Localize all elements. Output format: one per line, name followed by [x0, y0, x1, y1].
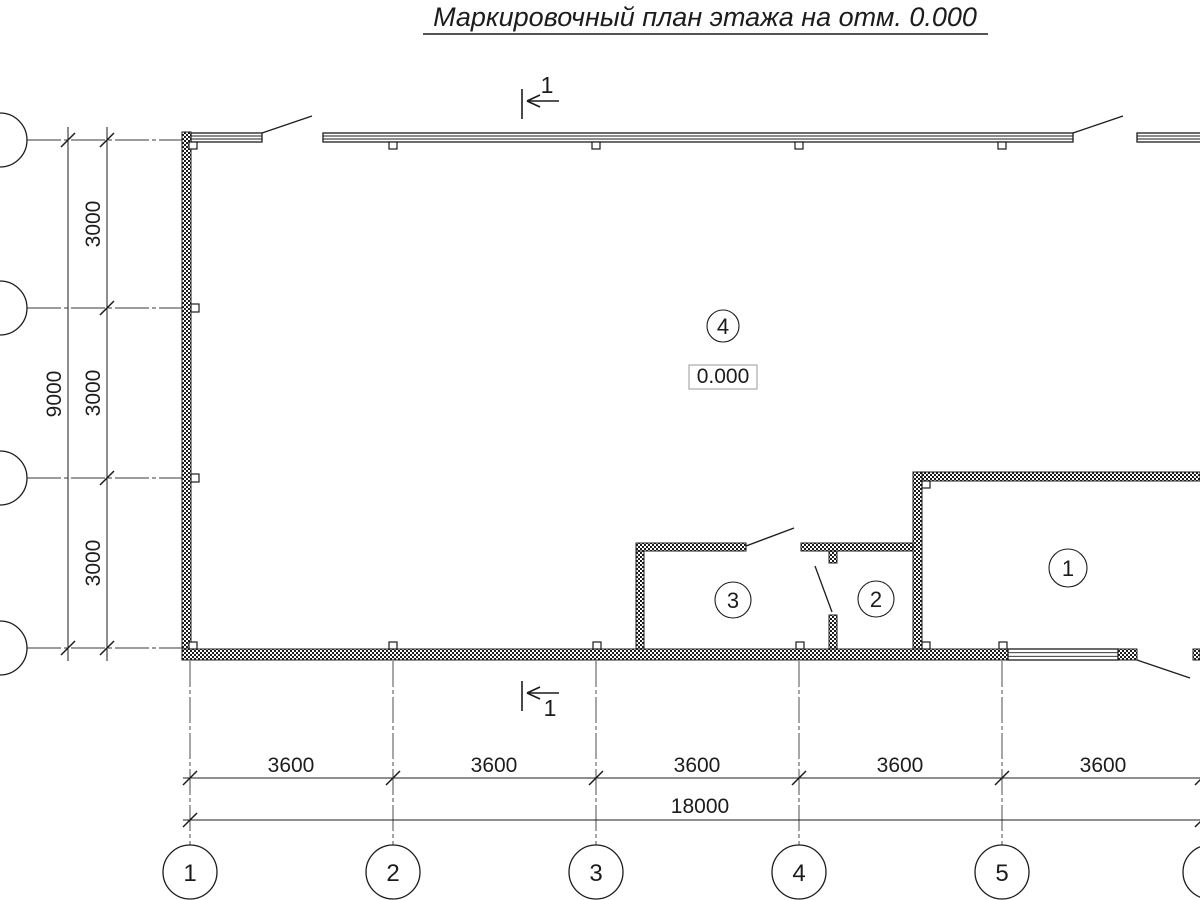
- room-number-4: 4: [717, 314, 729, 339]
- dim-label-18000: 18000: [671, 795, 729, 818]
- axis-bubble-row: [0, 113, 27, 167]
- dims-bottom: 3600 3600 3600 3600 3600 18000: [183, 754, 1200, 827]
- section-label-bottom: 1: [544, 695, 557, 721]
- axis-bubbles-bottom: 1 2 3 4 5 6: [163, 845, 1200, 899]
- section-arrow-barb: [527, 693, 540, 699]
- axis-number-3: 3: [589, 860, 602, 887]
- door-leaf-top-left: [262, 116, 312, 133]
- window-bands: [191, 133, 1200, 660]
- wall-partition-stub-bottom: [829, 615, 837, 649]
- axis-number-2: 2: [386, 860, 399, 887]
- floor-plan-sheet: Маркировочный план этажа на отм. 0.000 3…: [0, 0, 1200, 900]
- room-number-1: 1: [1062, 556, 1074, 581]
- dim-label-3600-1: 3600: [268, 754, 315, 777]
- tab-marker: [191, 304, 199, 312]
- tab-marker: [389, 142, 397, 149]
- tab-marker: [389, 642, 397, 649]
- wall-bottom-exterior: [182, 649, 1008, 660]
- axis-grid-bottom: [190, 661, 1002, 845]
- axis-bubble-row: [0, 451, 27, 505]
- dim-label-3600-2: 3600: [471, 754, 518, 777]
- wall-bottom-pier: [1118, 649, 1137, 660]
- wall-room1-left: [913, 472, 922, 649]
- axis-bubble-row: [0, 621, 27, 675]
- dim-label-3000-2: 3000: [82, 370, 105, 417]
- tab-marker: [593, 642, 601, 649]
- tab-marker: [922, 642, 930, 649]
- window-band-bottom: [1008, 649, 1118, 660]
- dim-label-3600-3: 3600: [674, 754, 721, 777]
- axis-number-4: 4: [792, 860, 805, 887]
- dim-label-3000-1: 3000: [82, 201, 105, 248]
- axis-number-1: 1: [183, 860, 196, 887]
- column-tabs: [189, 142, 1007, 649]
- room-number-3: 3: [727, 588, 739, 613]
- room-number-2: 2: [870, 587, 882, 612]
- elevation-value: 0.000: [697, 365, 750, 388]
- tab-marker: [592, 142, 600, 149]
- wall-bottom-right-stub: [1193, 649, 1200, 660]
- window-band-top-1: [191, 133, 262, 142]
- tab-marker: [189, 142, 197, 149]
- floor-plan-canvas: Маркировочный план этажа на отм. 0.000 3…: [0, 0, 1200, 900]
- dim-label-3000-3: 3000: [82, 540, 105, 587]
- section-arrow-barb: [527, 101, 540, 107]
- tab-marker: [189, 642, 197, 649]
- wall-left-exterior: [182, 132, 191, 660]
- section-label-top: 1: [541, 72, 554, 98]
- wall-partition-stub-top: [829, 551, 837, 563]
- wall-room1-top: [913, 472, 1200, 481]
- window-band-top-2: [323, 133, 1073, 142]
- dim-label-3600-5: 3600: [1080, 754, 1127, 777]
- door-leaf-room2: [815, 566, 832, 612]
- walls: [182, 132, 1200, 660]
- dim-label-3600-4: 3600: [877, 754, 924, 777]
- axis-number-5: 5: [995, 860, 1008, 887]
- window-band-top-3: [1137, 133, 1200, 142]
- axis-bubble-row: [0, 281, 27, 335]
- door-leaf-bottom-right: [1137, 660, 1190, 678]
- wall-room3-top: [636, 543, 746, 551]
- section-arrow-barb: [527, 95, 540, 101]
- door-leaf-top-right: [1073, 116, 1123, 133]
- tab-marker: [998, 142, 1006, 149]
- dim-label-9000: 9000: [43, 371, 66, 418]
- drawing-title: Маркировочный план этажа на отм. 0.000: [433, 2, 977, 32]
- tab-marker: [796, 642, 804, 649]
- wall-room2-top: [801, 543, 913, 551]
- tab-marker: [191, 474, 199, 482]
- dims-left: 3000 3000 3000 9000: [43, 127, 114, 661]
- tab-marker: [795, 142, 803, 149]
- wall-room3-left: [636, 543, 644, 649]
- room-labels: 4 0.000 3 2 1: [689, 310, 1087, 618]
- tab-marker: [922, 481, 930, 488]
- door-leaf-room3: [746, 528, 794, 546]
- section-arrow-barb: [527, 687, 540, 693]
- axis-bubble-6: [1183, 845, 1200, 899]
- tab-marker: [999, 642, 1007, 649]
